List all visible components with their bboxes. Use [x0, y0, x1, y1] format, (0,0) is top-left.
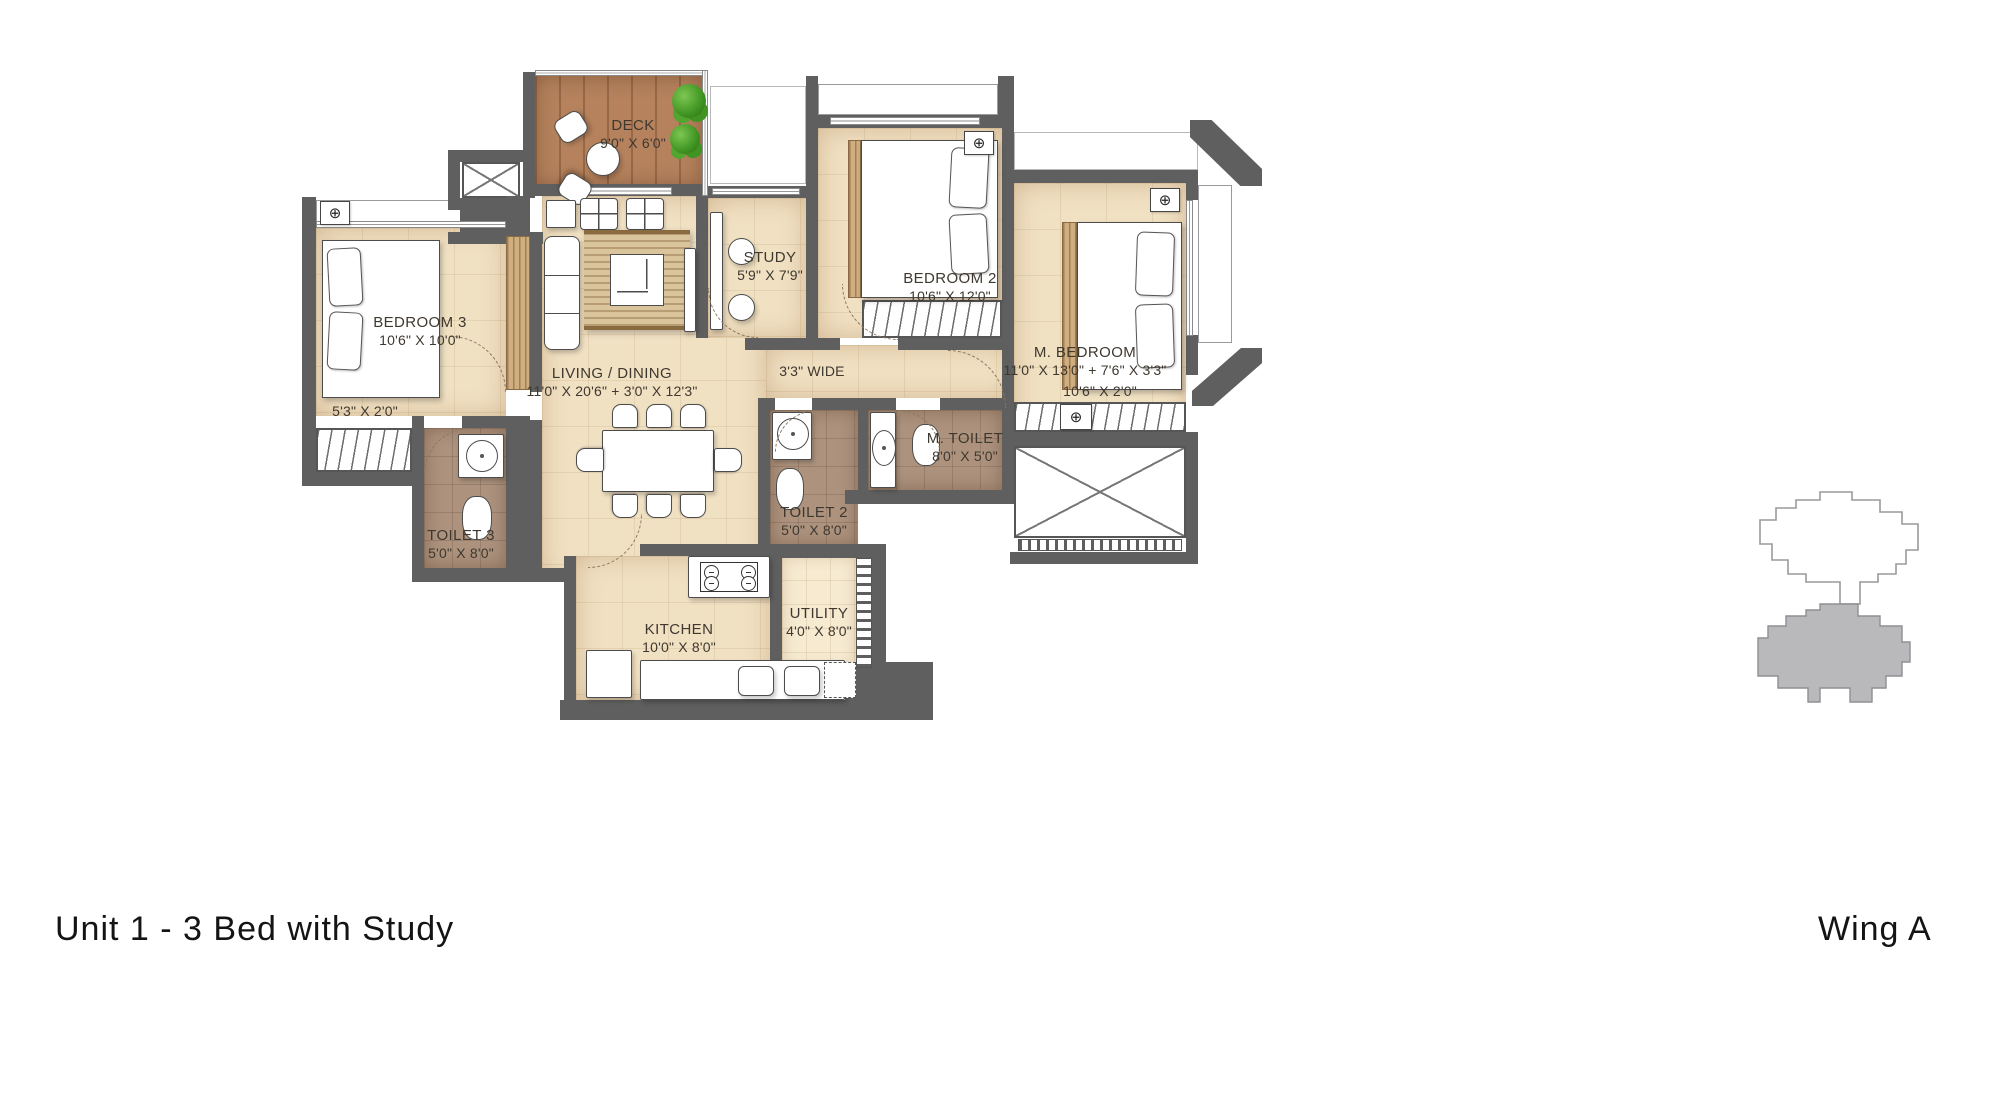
utility-label: UTILITY 4'0" X 8'0"	[759, 605, 879, 639]
ac-symbol: ⊕	[1070, 408, 1083, 426]
unit-title: Unit 1 - 3 Bed with Study	[55, 910, 454, 949]
wall	[462, 416, 518, 428]
dining-chair	[714, 448, 742, 472]
toilet3-sink	[466, 440, 498, 472]
bedroom3-label: BEDROOM 3 10'6" X 10'0"	[350, 314, 490, 348]
wall	[1186, 446, 1198, 552]
kitchen-label: KITCHEN 10'0" X 8'0"	[609, 621, 749, 655]
ac-unit-icon: ⊕	[320, 201, 350, 225]
deck-railing	[702, 70, 708, 196]
washing-machine	[824, 662, 856, 698]
bedroom2-headboard	[848, 140, 861, 298]
wall	[560, 700, 933, 720]
pillow	[948, 147, 989, 209]
master-wardrobe	[1014, 402, 1186, 432]
wall	[806, 76, 818, 116]
window	[830, 117, 980, 125]
wall	[806, 115, 818, 350]
deck-railing	[535, 70, 708, 76]
wall	[1186, 170, 1198, 200]
wall	[523, 72, 535, 198]
ac-unit-icon: ⊕	[964, 131, 994, 155]
kitchen-sink	[738, 666, 774, 696]
toilet2-label: TOILET 2 5'0" X 8'0"	[754, 504, 874, 538]
dining-chair	[680, 404, 706, 428]
duct-box	[462, 162, 520, 198]
keyplan-wing-highlight	[1758, 604, 1910, 702]
wall	[858, 398, 868, 490]
ac-unit-icon: ⊕	[1150, 188, 1180, 212]
pooja-cabinet	[626, 198, 664, 230]
wall	[998, 76, 1014, 116]
master-toilet-label: M. TOILET 8'0" X 5'0"	[895, 430, 1035, 464]
master-bedroom-balcony	[1198, 185, 1232, 343]
dining-chair	[612, 404, 638, 428]
gas-hob	[700, 562, 758, 592]
side-table	[546, 200, 576, 228]
ac-symbol: ⊕	[329, 204, 342, 222]
wing-key-plan-svg	[1748, 482, 1958, 714]
dining-chair	[576, 448, 604, 472]
wall	[530, 420, 542, 568]
passage-label: 3'3" WIDE	[752, 363, 872, 380]
wall	[758, 398, 775, 410]
utility-sink	[784, 666, 820, 696]
open-terrace-master	[1014, 132, 1198, 170]
window	[1186, 200, 1193, 336]
dining-table	[602, 430, 714, 492]
wall	[448, 150, 534, 162]
pillow	[948, 213, 989, 275]
keyplan-outline-upper	[1760, 492, 1918, 604]
open-terrace-top	[710, 86, 806, 184]
angled-wall-mid-right	[1192, 348, 1262, 406]
dining-chair	[680, 494, 706, 518]
wall	[506, 196, 530, 236]
refrigerator	[586, 650, 632, 698]
center-table	[610, 254, 664, 306]
window	[712, 188, 800, 195]
bedroom3-ledge	[316, 428, 412, 472]
wall	[640, 544, 758, 556]
bedroom3-ledge-label: 5'3" X 2'0"	[305, 403, 425, 420]
burner-icon	[741, 576, 756, 591]
dining-chair	[646, 494, 672, 518]
wall	[448, 150, 460, 210]
ac-unit-icon: ⊕	[1060, 404, 1092, 430]
ac-symbol: ⊕	[1159, 191, 1172, 209]
toilet3-label: TOILET 3 5'0" X 8'0"	[401, 527, 521, 561]
void-planter-box	[1014, 446, 1186, 538]
master-toilet-sink	[872, 430, 896, 466]
burner-icon	[704, 576, 719, 591]
wall	[302, 197, 316, 486]
wall	[1014, 170, 1186, 183]
pillow	[1135, 231, 1175, 296]
bedroom2-label: BEDROOM 2 10'6" X 12'0"	[880, 270, 1020, 304]
bedroom2-terrace	[818, 84, 998, 115]
tv-unit	[684, 248, 696, 332]
dining-chair	[646, 404, 672, 428]
wall	[1186, 335, 1198, 375]
floor-plan-canvas: ⊕ ⊕ ⊕ ⊕ DECK 9'0" X 6'0" STUDY	[0, 0, 2000, 1111]
wing-title: Wing A	[1818, 910, 1932, 949]
wall	[302, 472, 424, 486]
wing-key-plan	[1748, 482, 1958, 714]
study-label: STUDY 5'9" X 7'9"	[710, 249, 830, 283]
pooja-cabinet	[580, 198, 618, 230]
deck-label: DECK 9'0" X 6'0"	[573, 117, 693, 151]
wall	[818, 338, 840, 350]
ac-symbol: ⊕	[973, 134, 986, 152]
wall	[812, 398, 858, 410]
wall	[696, 198, 708, 338]
wall	[845, 490, 1014, 504]
master-wardrobe-label: 10'6" X 2'0"	[1040, 383, 1160, 400]
wall	[1010, 552, 1198, 564]
master-bedroom-label: M. BEDROOM 11'0" X 13'0" + 7'6" X 3'3"	[985, 344, 1185, 378]
angled-wall-top-right	[1190, 120, 1262, 186]
pillow	[327, 247, 364, 307]
sofa	[544, 236, 580, 350]
wall	[412, 568, 530, 582]
planter-grill	[1018, 539, 1182, 551]
plant	[672, 84, 706, 118]
living-dining-label: LIVING / DINING 11'0" X 20'6" + 3'0" X 1…	[502, 365, 722, 399]
